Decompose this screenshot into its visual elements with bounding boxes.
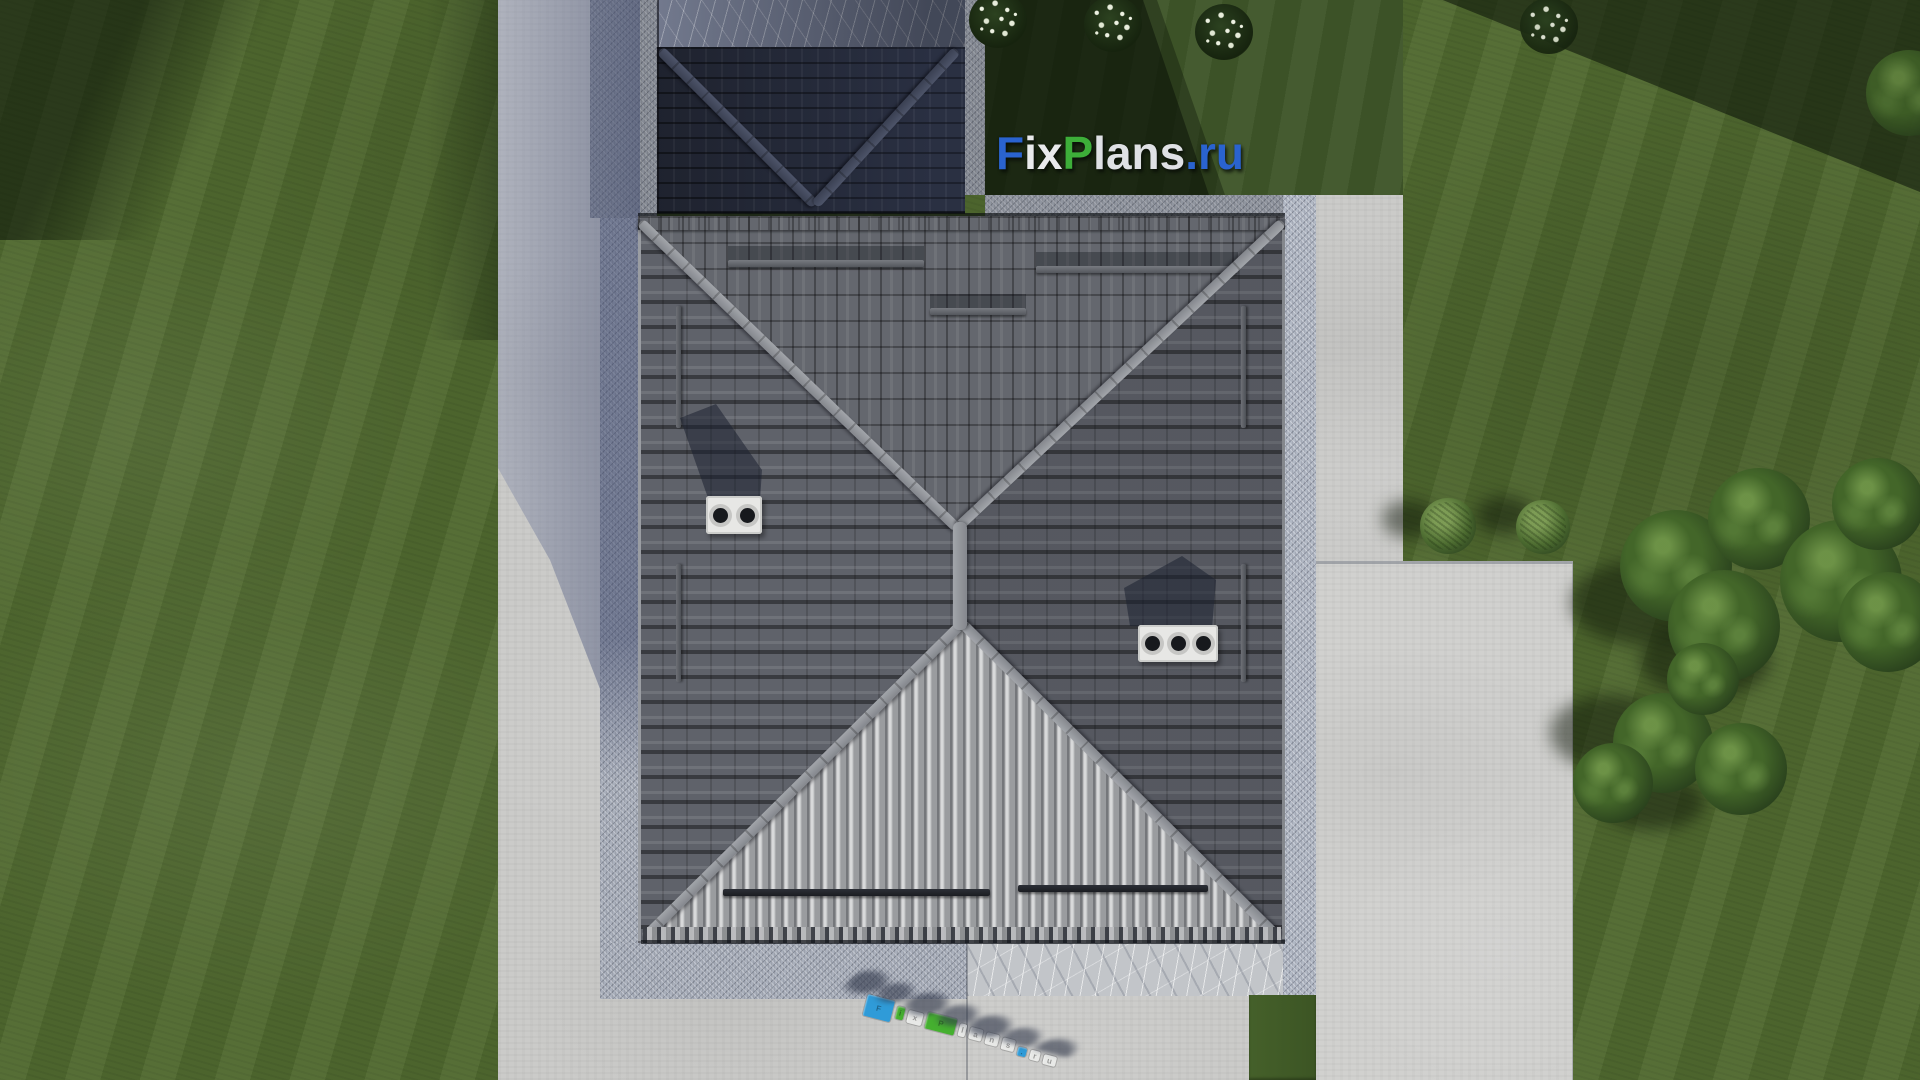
garage-hip-ridge-left: [656, 46, 818, 208]
chimney-vent-icon: [709, 504, 732, 527]
garage-eave-line-left: [657, 0, 659, 213]
gravel-apron-right: [1283, 195, 1316, 1003]
tree-cluster-lower: [1555, 635, 1835, 845]
watermark-part-p: P: [1062, 127, 1093, 179]
flower-bush-1: [969, 0, 1027, 48]
watermark-part-ru: .ru: [1185, 127, 1244, 179]
snow-guard-rail-east-2: [1241, 564, 1246, 682]
snow-guard-rail-north-3: [930, 308, 1026, 315]
eave-shadow-line-bottom: [641, 940, 1285, 944]
tree-blob: [1573, 743, 1653, 823]
snow-guard-rail-north-1: [728, 260, 924, 267]
garage-hip-ridge-right: [811, 47, 960, 209]
chimney-vent-icon: [736, 504, 759, 527]
chimney-vent-icon: [1141, 632, 1164, 655]
snow-guard-rail-west-1: [676, 306, 681, 428]
garage-building: [657, 0, 965, 213]
snow-guard-rail-south-2: [1018, 885, 1208, 892]
round-shrub-1: [1420, 498, 1476, 554]
tile-shadow-row: [930, 294, 1026, 309]
flower-bush-3: [1195, 4, 1253, 60]
gutter-east: [1282, 230, 1285, 939]
eave-shadow-line-top: [638, 213, 1285, 216]
snow-guard-rail-west-2: [676, 564, 681, 682]
stone-terrace-band: [657, 0, 965, 47]
ridge-cap-center: [953, 522, 967, 630]
grass-shadow-top-left: [0, 0, 320, 240]
snow-guard-rail-north-2: [1036, 266, 1238, 273]
chimney-west: [706, 496, 762, 534]
stone-slab-band-bottom: [967, 943, 1316, 996]
grass-shadow-top-right-corner: [1438, 0, 1920, 192]
watermark-part-f: F: [996, 127, 1024, 179]
gravel-apron-left: [600, 218, 643, 943]
snow-guard-rail-east-1: [1241, 306, 1246, 428]
apron-shadow: [600, 218, 643, 943]
chimney-east: [1138, 625, 1218, 662]
watermark-part-lans: lans: [1093, 127, 1185, 179]
tile-shadow-row: [1036, 252, 1238, 267]
round-shrub-2: [1516, 500, 1570, 554]
ground-letter: r: [1029, 1050, 1041, 1062]
garage-roof: [657, 47, 965, 213]
chimney-vent-icon: [1192, 632, 1215, 655]
ground-letter: u: [1042, 1054, 1057, 1067]
flower-bush-4: [1520, 0, 1578, 54]
grass-shade-strip-left: [426, 0, 498, 340]
gutter-north: [638, 217, 1285, 230]
pavement-terrace-block: [1316, 561, 1573, 1080]
tree-blob: [1695, 723, 1787, 815]
flower-bush-2: [1084, 0, 1142, 52]
watermark-logo: FixPlans.ru: [996, 130, 1244, 176]
site-plan-render: FixPlans.ru F i x P l a n s . r u: [0, 0, 1920, 1080]
chimney-vent-icon: [1167, 632, 1190, 655]
tree-blob: [1866, 50, 1920, 136]
watermark-part-ix: ix: [1024, 127, 1062, 179]
tree-blob: [1832, 458, 1920, 550]
corner-foliage: [1856, 40, 1920, 160]
tile-shadow-row: [728, 246, 924, 261]
grass-strip-bottom-right: [1249, 995, 1316, 1080]
ground-letter: .: [1016, 1046, 1027, 1057]
gutter-west: [638, 230, 641, 941]
tree-blob: [1667, 643, 1739, 715]
snow-guard-rail-south-1: [723, 889, 990, 896]
main-roof: [638, 216, 1285, 943]
